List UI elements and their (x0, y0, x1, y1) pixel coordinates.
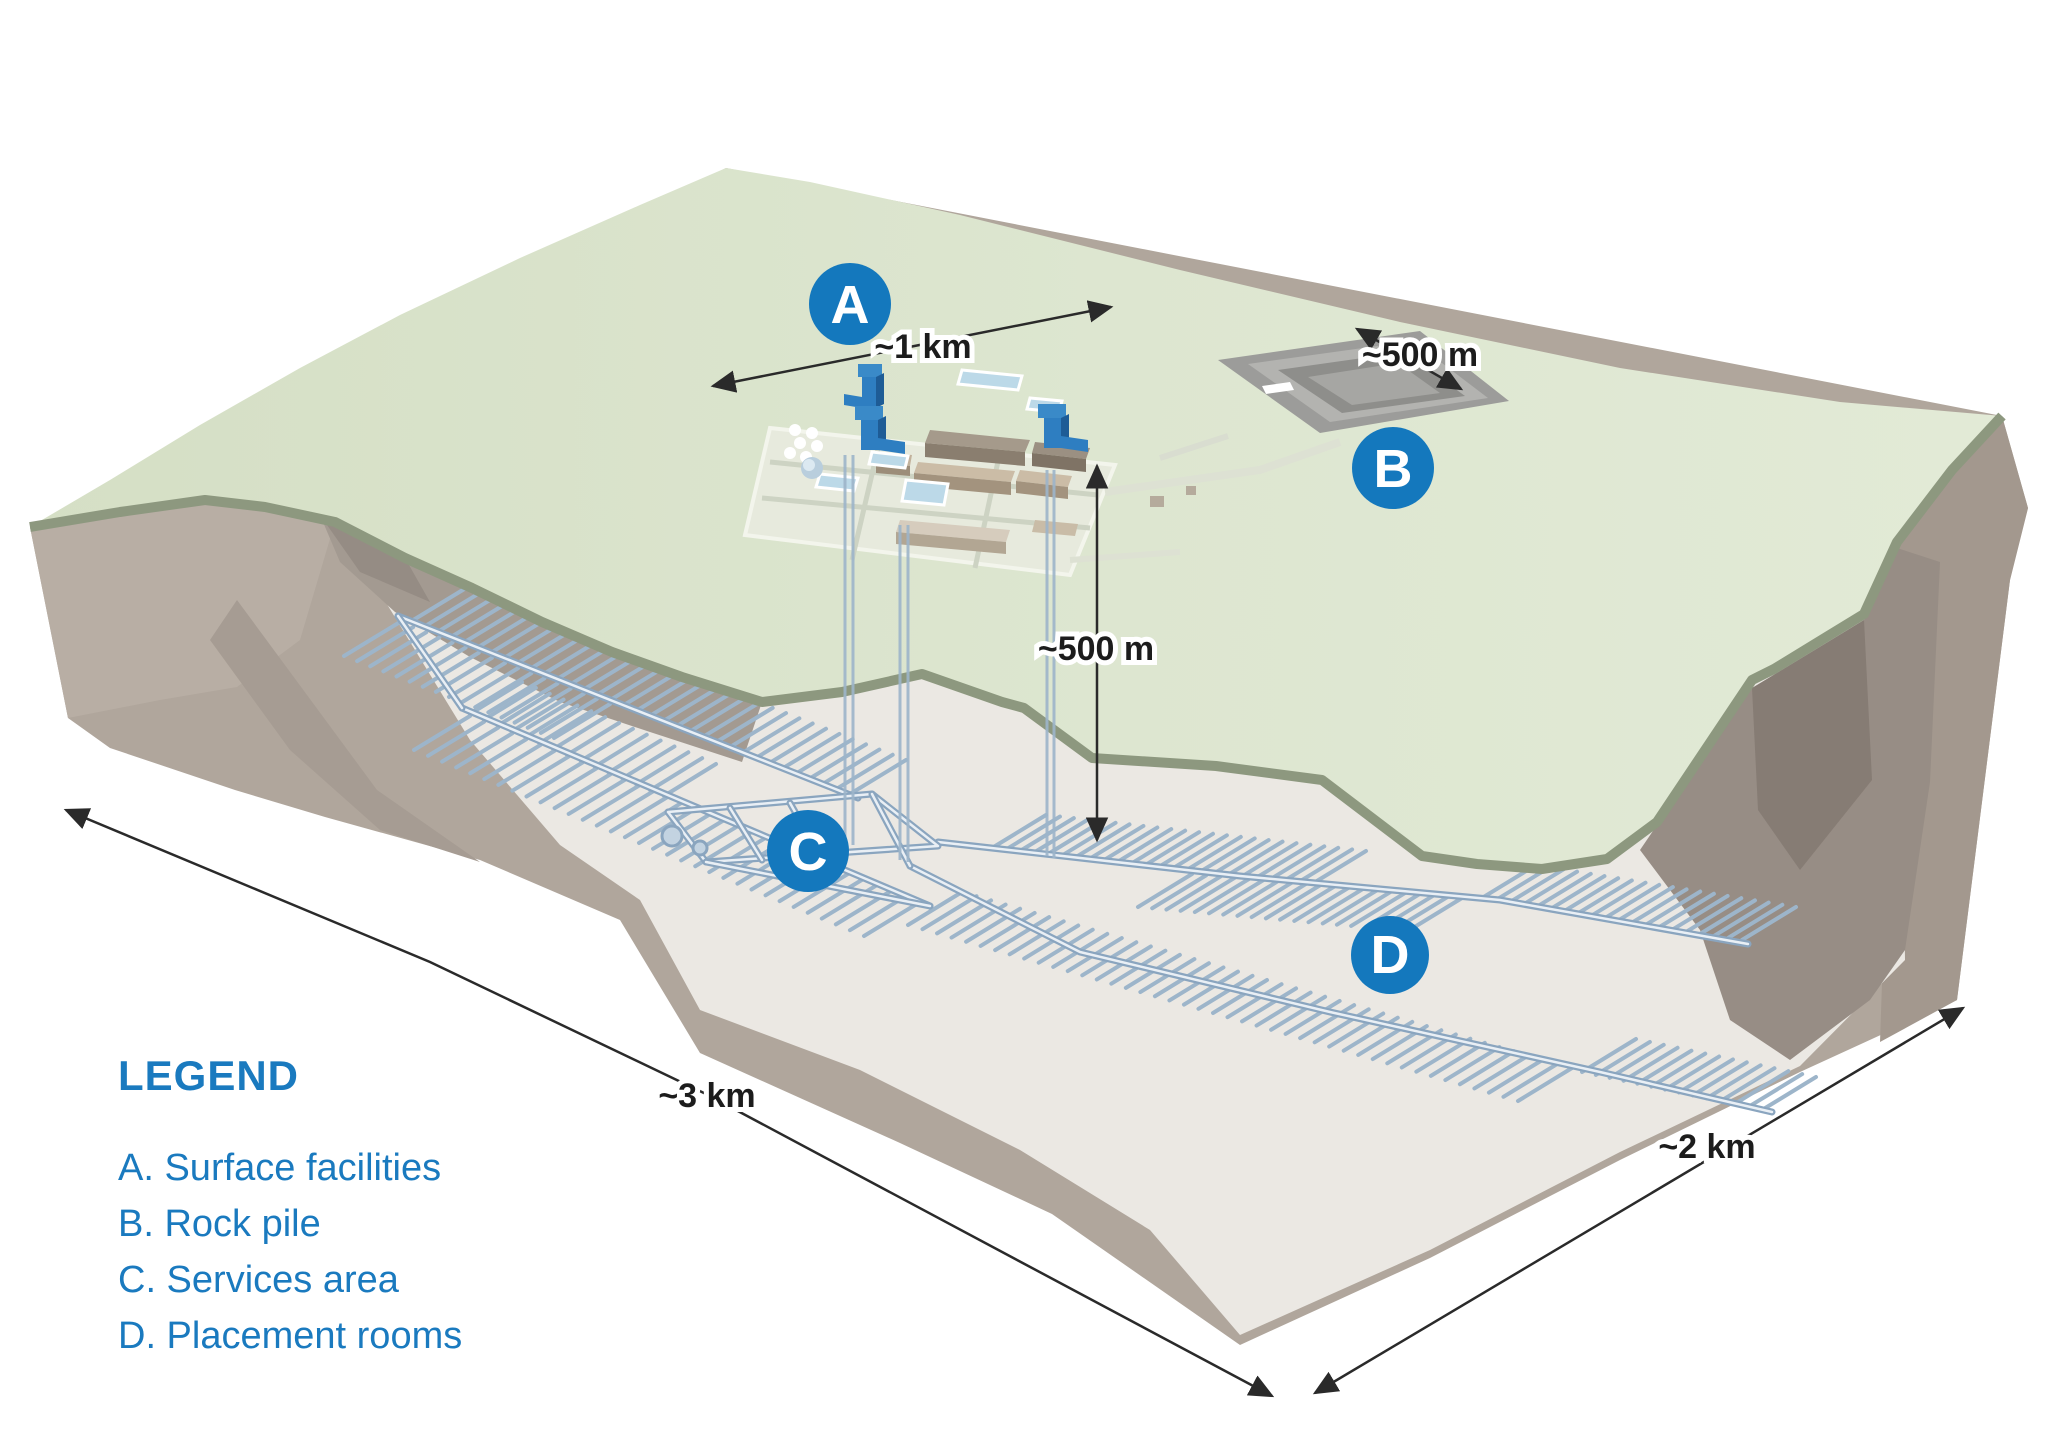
dim-1km-label: ~1 km (874, 328, 971, 366)
marker-a-letter: A (831, 275, 870, 335)
marker-c: C (767, 810, 849, 892)
dim-500m-pile-label: ~500 m (1362, 336, 1478, 374)
dim-3km-label: ~3 km (658, 1077, 755, 1115)
legend: LEGEND A. Surface facilities B. Rock pil… (118, 1052, 462, 1364)
dim-depth-label: ~500 m (1038, 630, 1154, 668)
marker-b-letter: B (1374, 439, 1413, 499)
legend-item-rock-pile: B. Rock pile (118, 1196, 462, 1252)
marker-d: D (1351, 916, 1429, 994)
marker-d-letter: D (1371, 925, 1410, 985)
repository-diagram: ~1 km ~500 m ~500 m ~3 km ~2 km A B C D … (0, 0, 2048, 1443)
marker-b: B (1352, 427, 1434, 509)
legend-item-surface-facilities: A. Surface facilities (118, 1140, 462, 1196)
marker-a: A (809, 263, 891, 345)
dim-2km-label: ~2 km (1658, 1128, 1755, 1166)
marker-c-letter: C (789, 822, 828, 882)
legend-title: LEGEND (118, 1052, 462, 1100)
legend-item-services-area: C. Services area (118, 1252, 462, 1308)
legend-item-placement-rooms: D. Placement rooms (118, 1308, 462, 1364)
